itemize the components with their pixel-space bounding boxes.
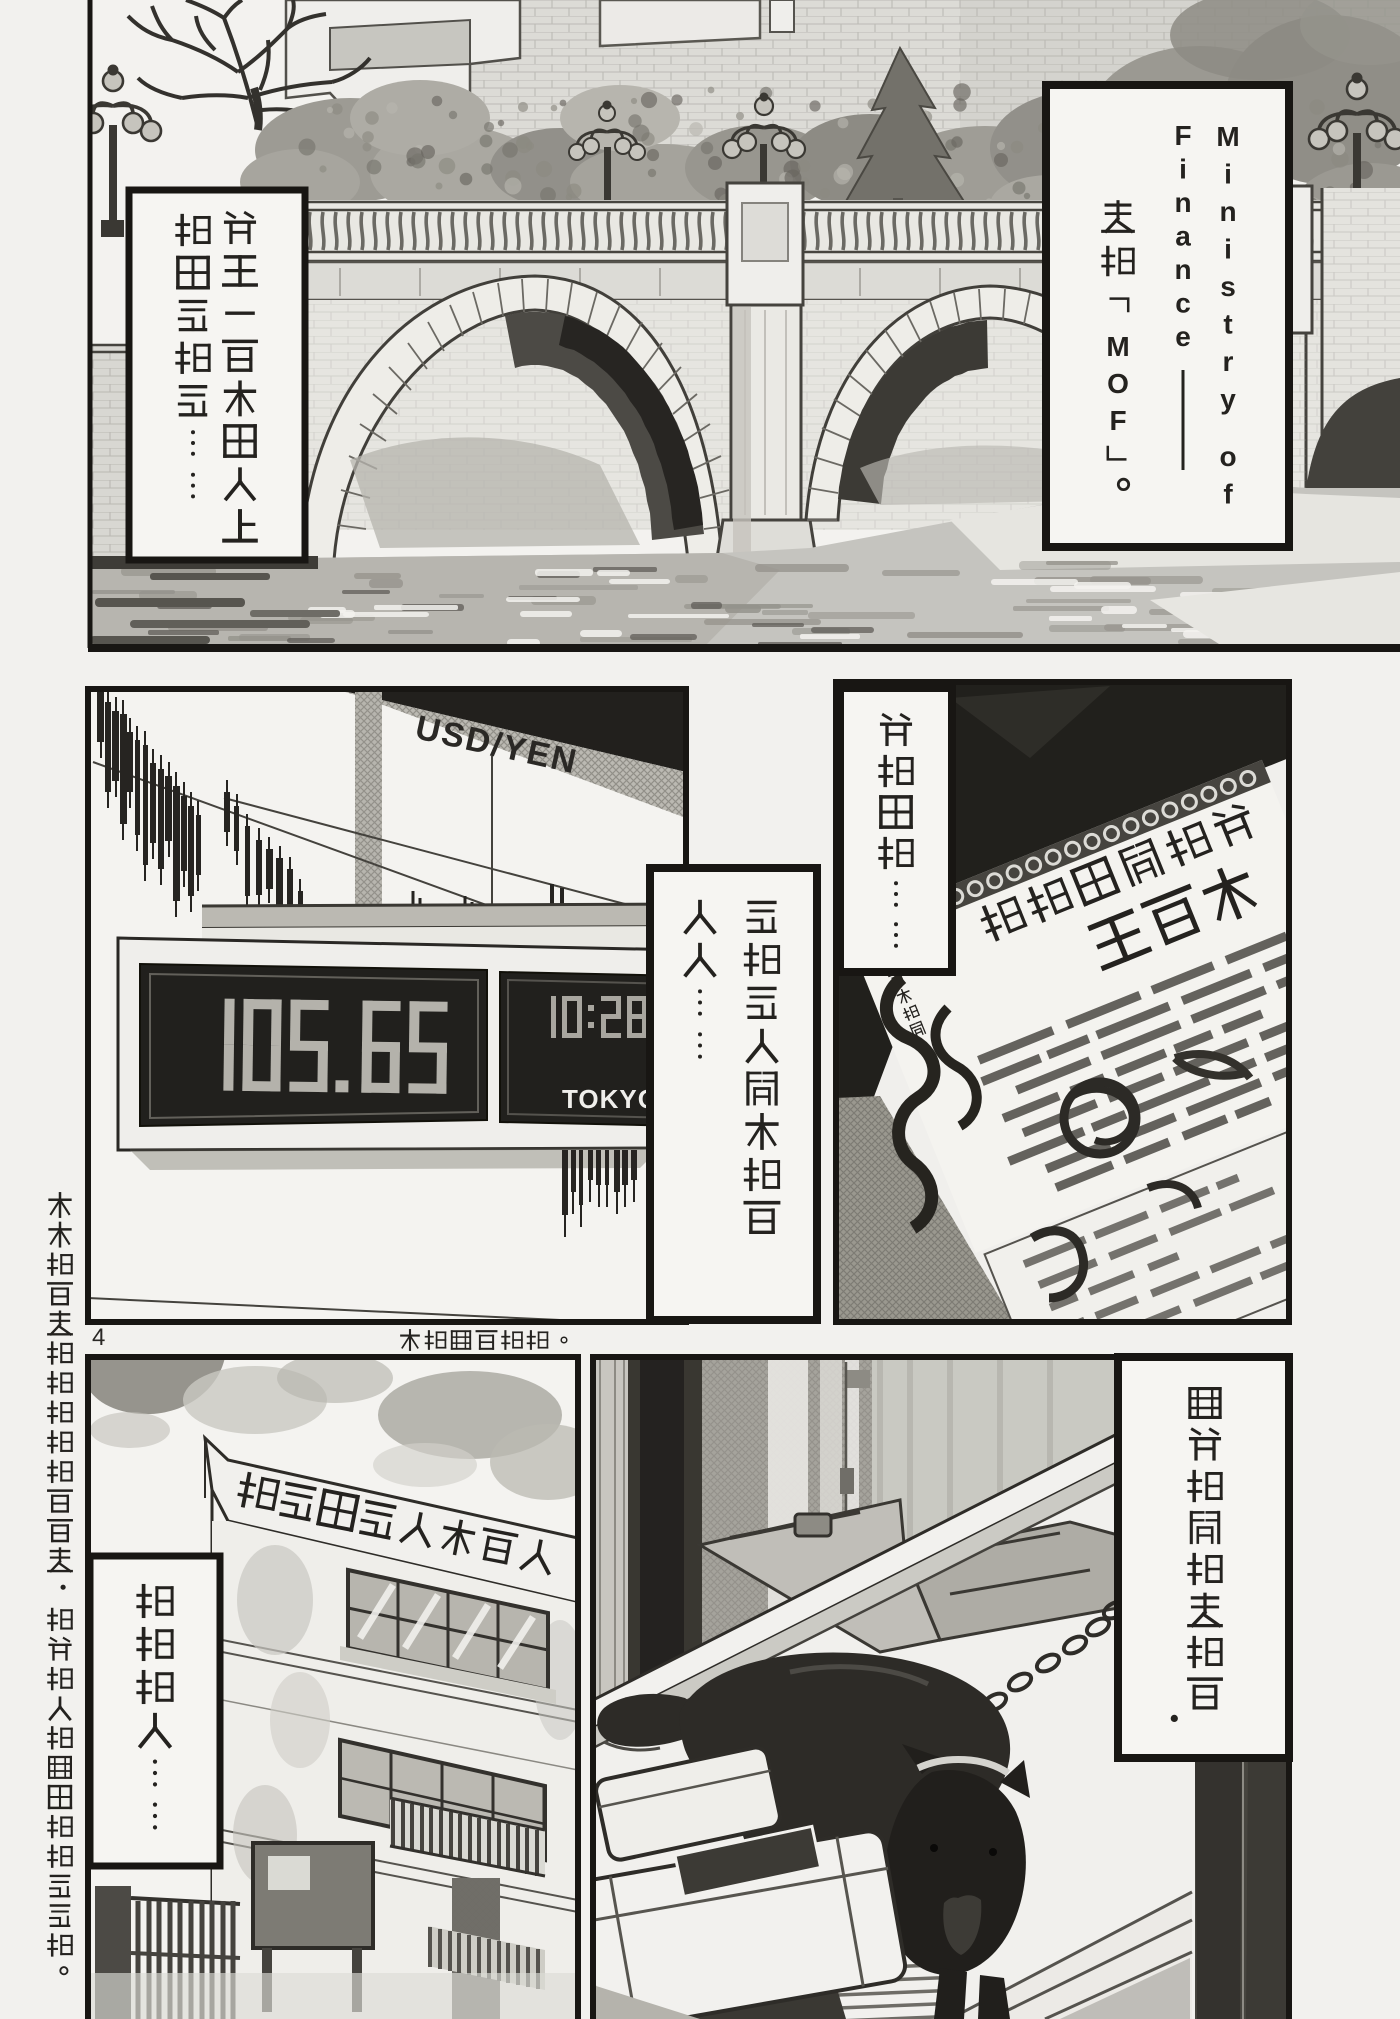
svg-text:M: M [1216, 121, 1239, 152]
svg-text:4: 4 [92, 1324, 105, 1351]
svg-text:s: s [1220, 271, 1236, 302]
svg-text:e: e [1175, 321, 1191, 352]
svg-text:F: F [1109, 405, 1126, 436]
svg-text:y: y [1220, 384, 1236, 415]
svg-text:i: i [1179, 154, 1187, 185]
svg-text:c: c [1175, 288, 1191, 319]
svg-text:r: r [1223, 346, 1234, 377]
svg-text:f: f [1223, 479, 1233, 510]
svg-text:o: o [1219, 441, 1236, 472]
svg-text:t: t [1223, 309, 1232, 340]
svg-text:M: M [1106, 331, 1129, 362]
svg-text:O: O [1107, 368, 1129, 399]
svg-text:n: n [1174, 254, 1191, 285]
svg-text:n: n [1174, 187, 1191, 218]
svg-text:TOKYO: TOKYO [562, 1084, 659, 1114]
svg-text:n: n [1219, 196, 1236, 227]
svg-text:F: F [1174, 120, 1191, 151]
svg-text:a: a [1175, 221, 1191, 252]
svg-text:i: i [1224, 234, 1232, 265]
svg-text:i: i [1224, 159, 1232, 190]
